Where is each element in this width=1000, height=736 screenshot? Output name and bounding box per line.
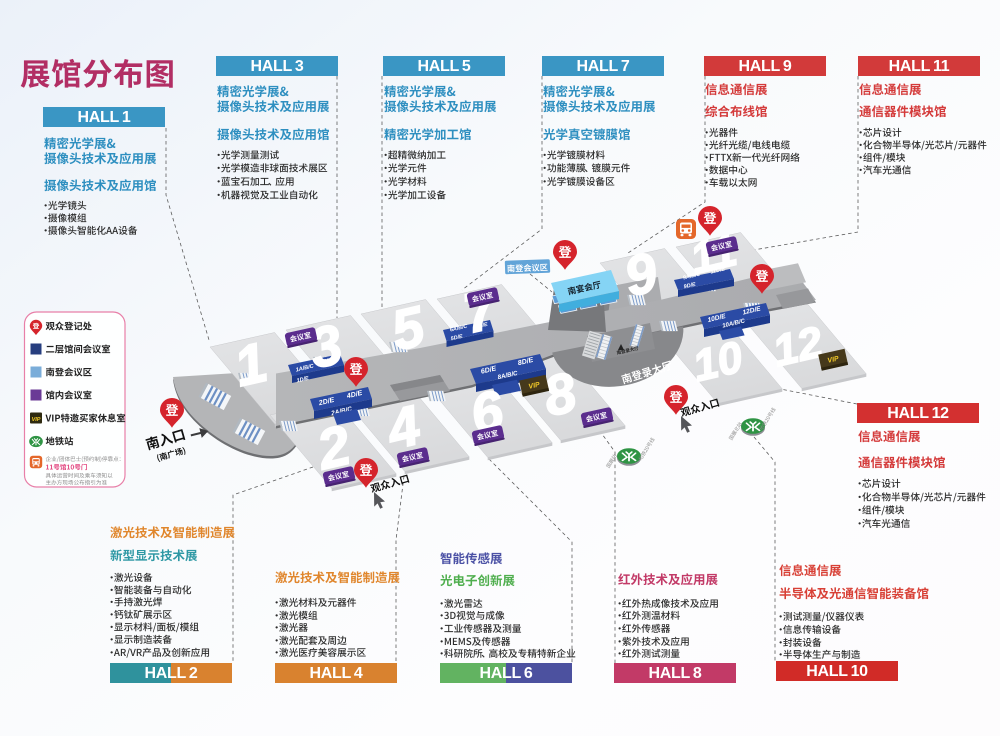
svg-text:HALL 4: HALL 4	[310, 665, 363, 682]
svg-text:HALL 12: HALL 12	[887, 405, 949, 422]
svg-text:HALL 10: HALL 10	[806, 663, 868, 680]
svg-text:HALL 7: HALL 7	[577, 58, 630, 75]
svg-text:HALL 5: HALL 5	[418, 58, 471, 75]
svg-text:HALL 9: HALL 9	[739, 58, 792, 75]
svg-text:VIP: VIP	[32, 417, 41, 423]
svg-text:HALL 8: HALL 8	[649, 665, 702, 682]
svg-text:HALL 1: HALL 1	[78, 109, 131, 126]
svg-text:HALL 11: HALL 11	[889, 58, 950, 75]
svg-text:HALL 3: HALL 3	[251, 58, 304, 75]
svg-text:HALL 2: HALL 2	[145, 665, 198, 682]
svg-text:HALL 6: HALL 6	[480, 665, 533, 682]
